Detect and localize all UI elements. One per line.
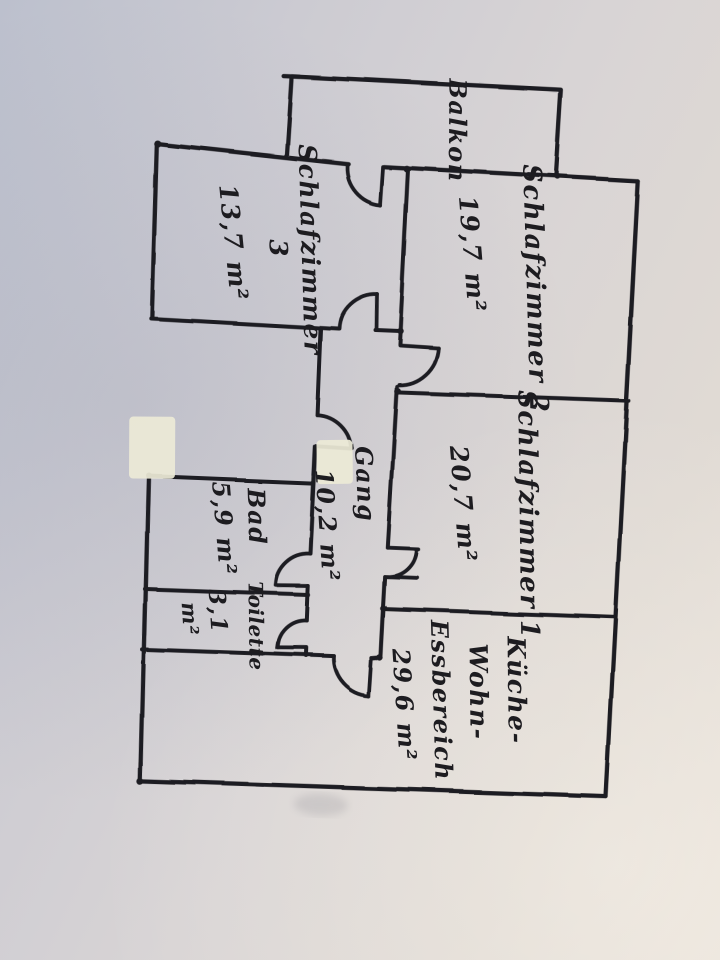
gang-area: 10,2 m² (312, 468, 343, 583)
balcony-door-arc (346, 165, 384, 204)
kueche-label-line1: Küche- (504, 636, 530, 744)
toilette-door-arc (277, 620, 306, 649)
whiteout-patch-notch (129, 417, 175, 479)
toilette-label: Toilette (246, 581, 267, 670)
bad-area: 5,9 m² (208, 480, 240, 577)
schlafzimmer3-label: Schlafzimmer (295, 144, 326, 356)
outer-walls (132, 143, 639, 800)
kueche-label-line2: Wohn- (465, 643, 491, 740)
bad-label: Bad (244, 488, 270, 546)
balkon-label: Balkon (445, 79, 470, 183)
pencil-smudge (294, 793, 349, 817)
toilette-area-unit: m² (179, 601, 202, 637)
kueche-area: 29,6 m² (388, 648, 419, 763)
schlafzimmer3-number: 3 (265, 239, 291, 259)
schlafzimmer1-door-arc (385, 548, 418, 578)
kueche-label-line3: Essbereich (427, 619, 456, 781)
schlafzimmer2-label: Schlafzimmer 2 (518, 164, 551, 414)
photographed-floor-plan: Balkon Schlafzimmer 2 19,7 m² Schlafzimm… (0, 0, 720, 960)
schlafzimmer1-label: Schlafzimmer 1 (513, 390, 542, 640)
schlafzimmer3-door-arc (339, 293, 377, 330)
toilette-area-value: 3,1 (205, 588, 231, 634)
kueche-door-arc (332, 656, 371, 695)
bad-door-arc (275, 553, 309, 587)
floor-plan-drawing: Balkon Schlafzimmer 2 19,7 m² Schlafzimm… (0, 0, 720, 960)
schlafzimmer2-door-arc (398, 346, 439, 387)
gang-label: Gang (351, 446, 379, 523)
